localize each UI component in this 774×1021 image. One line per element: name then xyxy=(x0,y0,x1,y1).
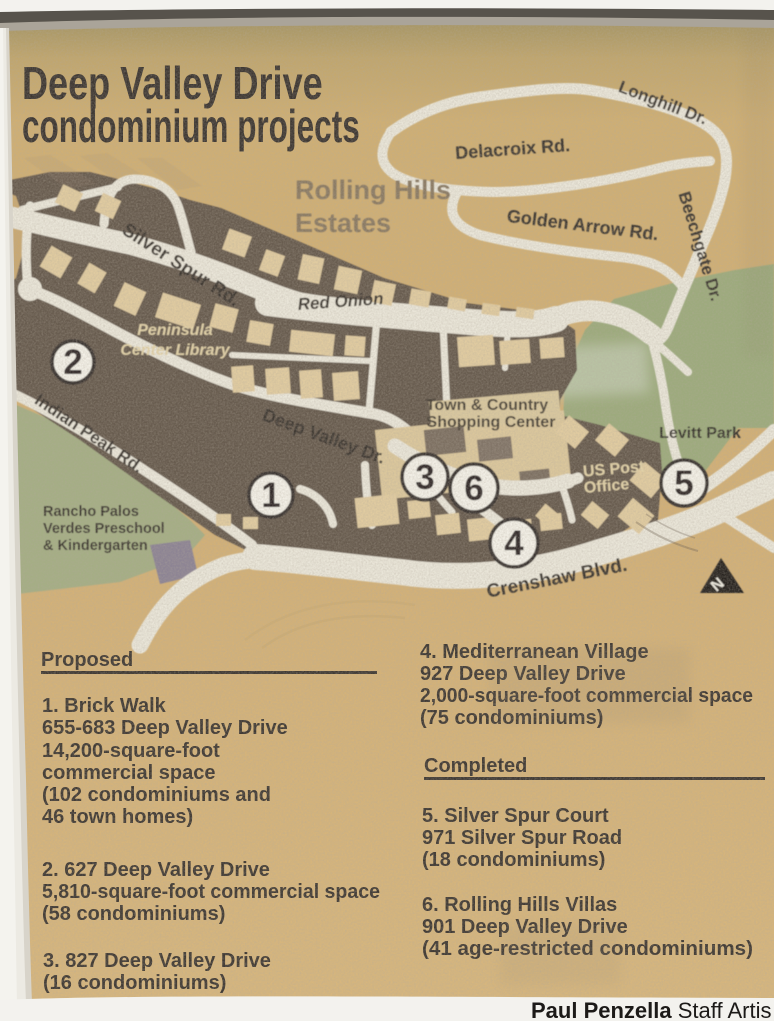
svg-text:Paul Penzella Staff Artis: Paul Penzella Staff Artis xyxy=(531,998,771,1021)
